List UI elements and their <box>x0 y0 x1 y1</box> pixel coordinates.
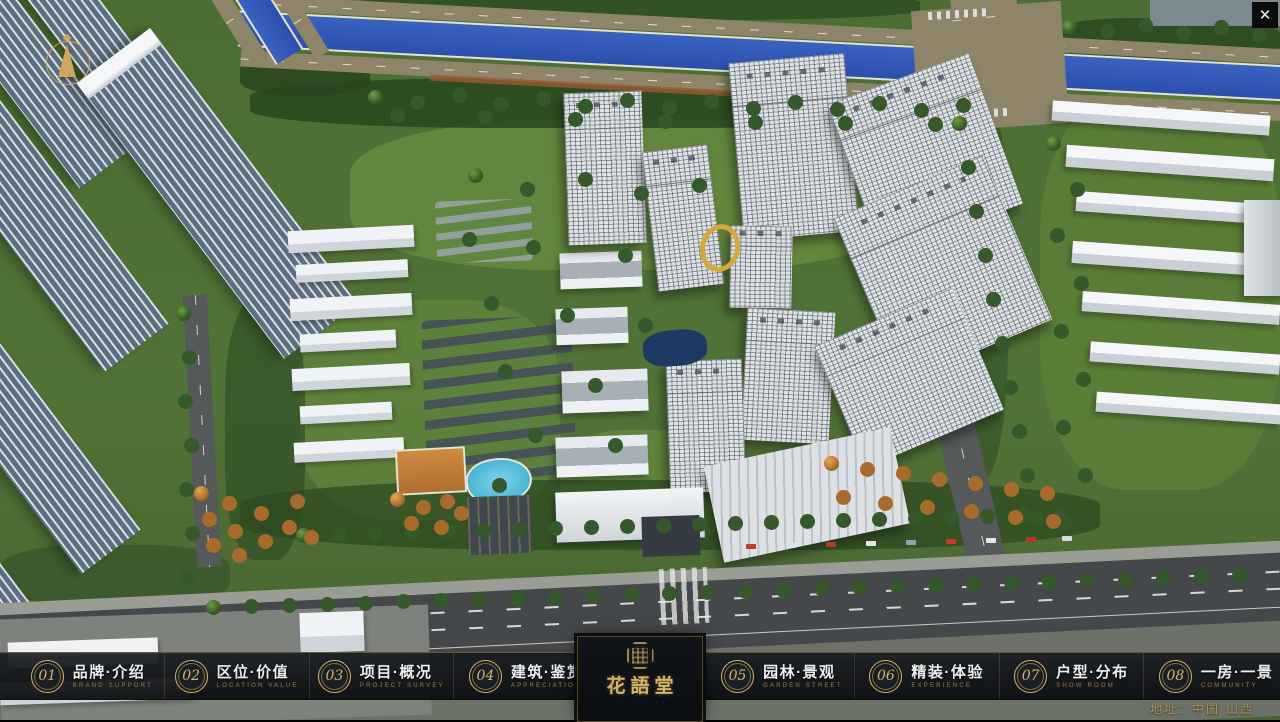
orange-roof-building <box>395 446 467 496</box>
menu-item-garden[interactable]: 05 园林·景观 GARDEN STREET <box>710 653 854 699</box>
menu-item-interior[interactable]: 06 精装·体验 EXPERIENCE <box>854 653 999 699</box>
menu-item-text: 一房·一景 COMMUNITY <box>1201 664 1274 689</box>
compass-needle <box>58 44 76 77</box>
gatehouse <box>467 495 533 555</box>
brand-seal-icon <box>627 642 654 669</box>
midrise-building <box>561 369 648 414</box>
tree-cluster <box>952 116 967 131</box>
midrise-building <box>555 307 628 345</box>
masterplan-3d-view[interactable] <box>0 0 1280 720</box>
menu-label-zh: 精装·体验 <box>911 664 984 681</box>
midrise-building <box>559 251 642 290</box>
menu-label-en: EXPERIENCE <box>911 683 972 689</box>
project-address: 地址：中国·山西 <box>1150 700 1254 717</box>
close-button[interactable]: ✕ <box>1252 2 1278 28</box>
compass-icon <box>42 34 94 86</box>
menu-item-floorplans[interactable]: 07 户型·分布 SHOW ROOM <box>999 653 1144 699</box>
menu-label-zh: 品牌·介绍 <box>73 664 146 681</box>
menu-label-zh: 建筑·鉴赏 <box>511 664 584 681</box>
menu-item-text: 精装·体验 EXPERIENCE <box>911 664 984 689</box>
tree-cluster <box>296 528 311 543</box>
menu-label-en: LOCATION VALUE <box>217 683 299 689</box>
menu-item-text: 建筑·鉴赏 APPRECIATION <box>511 664 584 689</box>
autumn-tree-cluster <box>194 486 209 501</box>
brand-logo-panel[interactable]: 花語堂 · · · · · · · · <box>577 636 703 722</box>
tower <box>563 91 646 246</box>
tower <box>1244 200 1280 296</box>
menu-number-badge: 04 <box>469 660 502 693</box>
menu-label-en: PROJECT SURVEY <box>360 683 445 689</box>
menu-item-location[interactable]: 02 区位·价值 LOCATION VALUE <box>164 653 309 699</box>
brand-caption: · · · · · · · · <box>613 700 666 706</box>
autumn-tree-cluster <box>824 456 839 471</box>
tree-cluster <box>206 600 221 615</box>
menu-item-project[interactable]: 03 项目·概况 PROJECT SURVEY <box>309 653 454 699</box>
menu-label-en: COMMUNITY <box>1201 683 1258 689</box>
menu-number-badge: 07 <box>1014 660 1047 693</box>
tower <box>728 53 859 240</box>
menu-number-badge: 06 <box>869 660 902 693</box>
menu-item-text: 项目·概况 PROJECT SURVEY <box>360 664 445 689</box>
menu-label-zh: 一房·一景 <box>1201 664 1274 681</box>
menu-number-badge: 01 <box>31 660 64 693</box>
menu-label-zh: 户型·分布 <box>1056 664 1129 681</box>
menu-number-badge: 08 <box>1159 660 1192 693</box>
menu-item-text: 园林·景观 GARDEN STREET <box>763 664 843 689</box>
menu-label-en: BRAND SUPPORT <box>73 683 153 689</box>
menu-group-left: 01 品牌·介绍 BRAND SUPPORT 02 区位·价值 LOCATION… <box>0 653 602 699</box>
parked-cars <box>746 544 756 549</box>
entrance-gate <box>641 515 700 557</box>
road-north-stub <box>950 0 1020 39</box>
tower <box>741 308 836 444</box>
menu-label-en: GARDEN STREET <box>763 683 843 689</box>
menu-item-text: 品牌·介绍 BRAND SUPPORT <box>73 664 153 689</box>
menu-label-zh: 区位·价值 <box>217 664 290 681</box>
menu-label-zh: 项目·概况 <box>360 664 433 681</box>
tree-cluster <box>368 90 383 105</box>
brand-name: 花語堂 <box>601 671 678 698</box>
menu-label-en: APPRECIATION <box>511 683 582 689</box>
autumn-tree-cluster <box>390 492 405 507</box>
west-road <box>183 295 221 568</box>
menu-label-en: SHOW ROOM <box>1056 683 1115 689</box>
tree-cluster <box>1062 20 1077 35</box>
menu-number-badge: 03 <box>318 660 351 693</box>
tree-cluster <box>468 168 483 183</box>
menu-label-zh: 园林·景观 <box>763 664 836 681</box>
crosswalk <box>659 567 710 625</box>
menu-item-brand[interactable]: 01 品牌·介绍 BRAND SUPPORT <box>20 653 164 699</box>
menu-item-text: 户型·分布 SHOW ROOM <box>1056 664 1129 689</box>
menu-item-text: 区位·价值 LOCATION VALUE <box>217 664 299 689</box>
menu-group-right: 05 园林·景观 GARDEN STREET 06 精装·体验 EXPERIEN… <box>702 653 1280 699</box>
tree-cluster <box>1046 136 1061 151</box>
menu-number-badge: 02 <box>175 660 208 693</box>
menu-item-views[interactable]: 08 一房·一景 COMMUNITY <box>1143 653 1280 699</box>
tree-cluster <box>176 306 191 321</box>
row-building <box>299 611 364 653</box>
menu-number-badge: 05 <box>721 660 754 693</box>
townhouse-cluster <box>435 198 533 263</box>
midrise-building <box>555 434 648 477</box>
